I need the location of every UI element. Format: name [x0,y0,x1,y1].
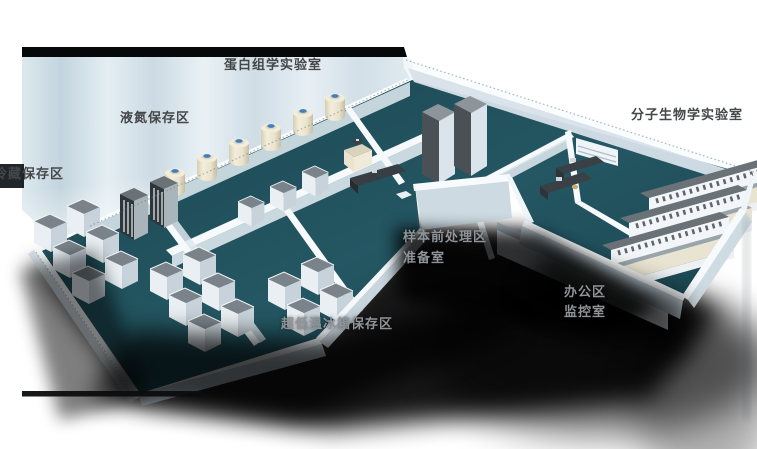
floorplan-3d-render [0,0,757,449]
label-ultralow-freezer-storage: 超低温冰箱保存区 [281,318,393,331]
bottom-black-strip [22,391,202,397]
label-cold-storage: 冷藏保存区 [0,168,64,181]
label-preparation-room: 准备室 [403,252,445,265]
proteomics-cabinets [422,96,487,184]
label-molecular-biology-lab: 分子生物学实验室 [631,109,743,122]
label-proteomics-lab: 蛋白组学实验室 [224,59,322,72]
label-liquid-nitrogen-storage: 液氮保存区 [120,112,190,125]
label-office-area: 办公区 [564,286,606,299]
label-sample-pretreatment: 样本前处理区 [403,231,487,244]
wall-top-black-strip [22,47,407,57]
lab-floorplan-screenshot: 蛋白组学实验室 液氮保存区 冷藏保存区 分子生物学实验室 样本前处理区 准备室 … [0,0,757,449]
label-monitoring-room: 监控室 [564,306,606,319]
